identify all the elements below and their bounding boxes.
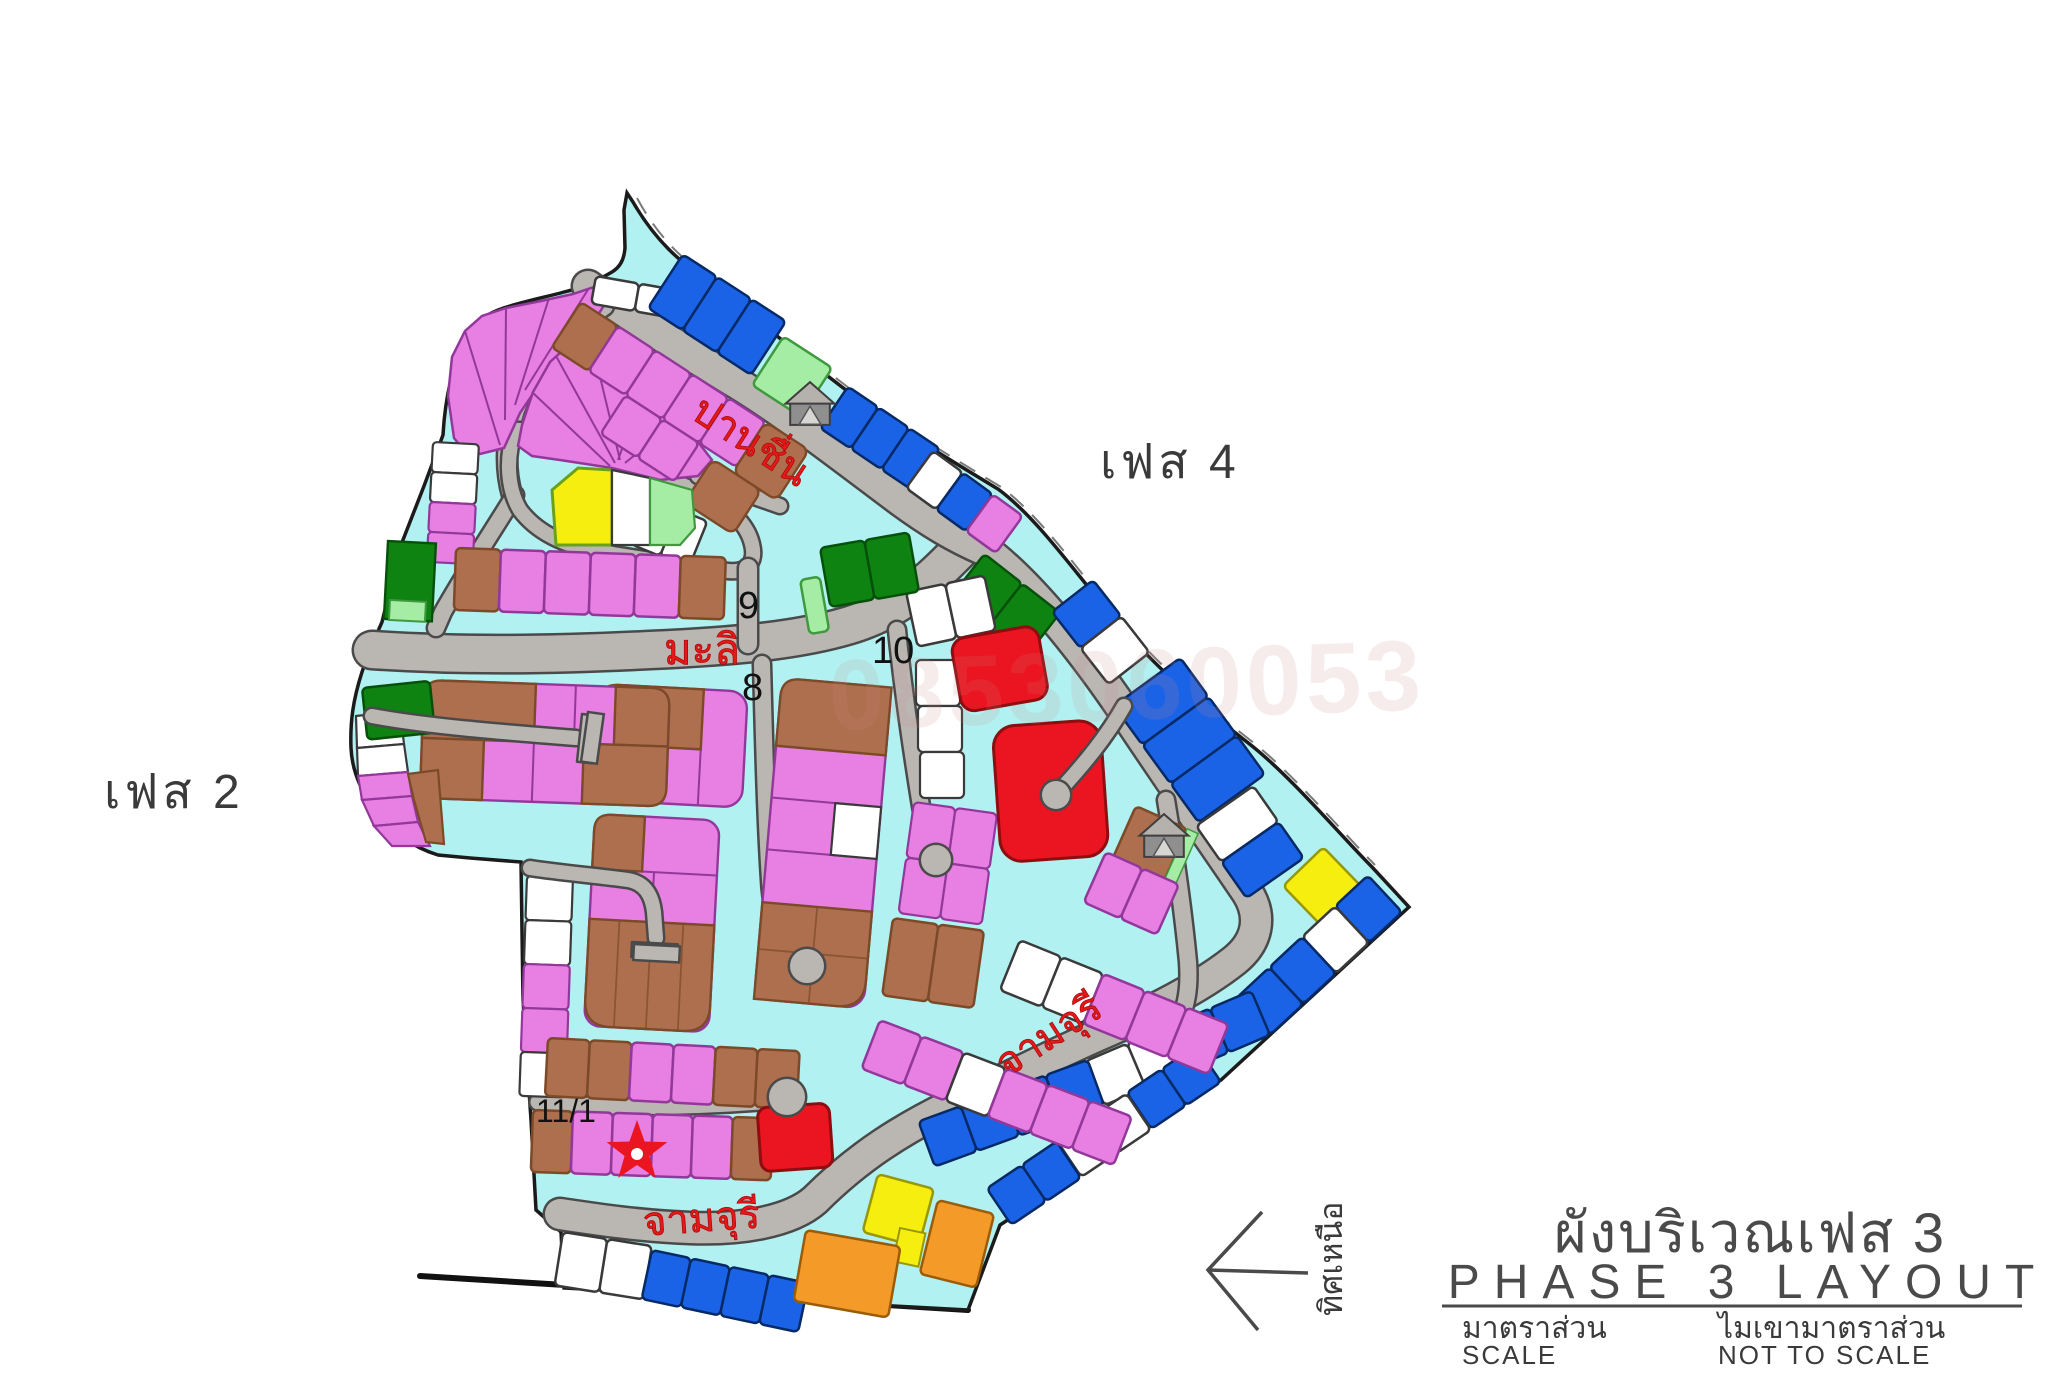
svg-text:มะลิ: มะลิ xyxy=(664,626,740,673)
svg-text:ทิศเหนือ: ทิศเหนือ xyxy=(1313,1201,1349,1316)
svg-text:เฟส 2: เฟส 2 xyxy=(104,766,244,819)
svg-text:11/1: 11/1 xyxy=(536,1093,596,1129)
svg-text:10: 10 xyxy=(872,630,914,672)
svg-text:ผังบริเวณเฟส 3: ผังบริเวณเฟส 3 xyxy=(1554,1201,1946,1264)
svg-text:เฟส 4: เฟส 4 xyxy=(1100,436,1240,489)
svg-text:SCALE: SCALE xyxy=(1462,1340,1557,1370)
svg-text:0853060053: 0853060053 xyxy=(827,619,1427,752)
svg-text:NOT TO SCALE: NOT TO SCALE xyxy=(1718,1340,1931,1370)
svg-text:8: 8 xyxy=(742,667,763,709)
svg-text:PHASE 3 LAYOUT: PHASE 3 LAYOUT xyxy=(1448,1256,2048,1309)
svg-text:9: 9 xyxy=(738,585,759,627)
